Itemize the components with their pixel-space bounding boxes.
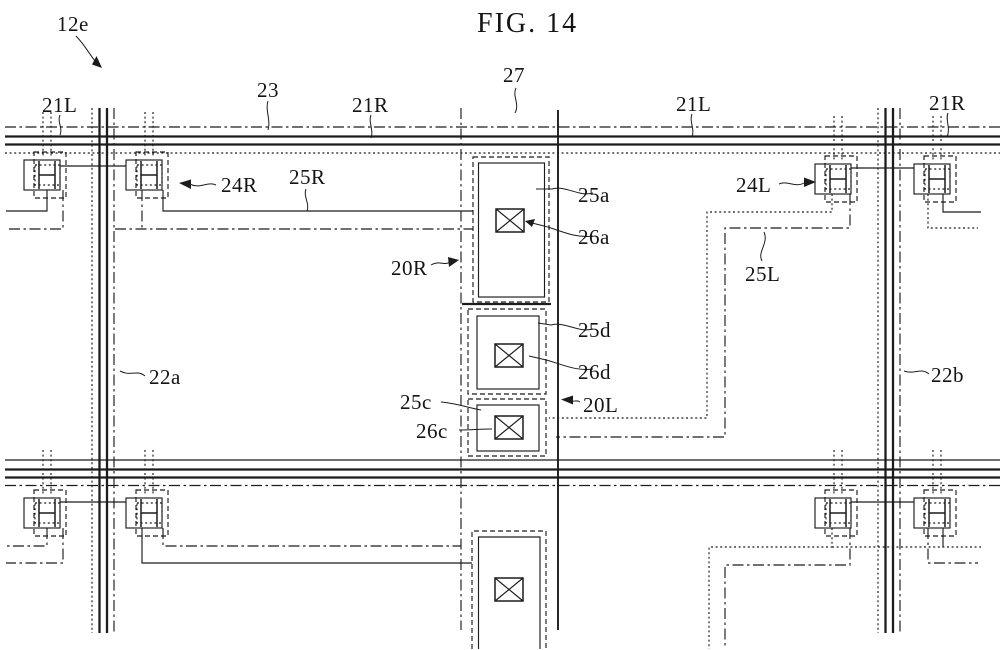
patent-figure-page: FIG. 14 12e 21L 23 21R 27 21L 21R 24R 25… [0, 0, 1004, 650]
arrow-24L [779, 178, 816, 188]
label-22b: 22b [931, 363, 964, 387]
figure-title: FIG. 14 [477, 8, 578, 39]
label-26c: 26c [416, 419, 448, 443]
label-25c: 25c [400, 390, 432, 414]
label-21L-left: 21L [42, 93, 77, 117]
arrow-12e [76, 36, 102, 68]
label-24R: 24R [221, 173, 258, 197]
leader-21L-left [59, 115, 61, 135]
arrow-20R [431, 257, 459, 267]
leader-21R-right [947, 113, 948, 137]
label-26d: 26d [578, 360, 611, 384]
label-24L: 24L [736, 173, 771, 197]
leader-21L-right [691, 114, 693, 137]
center-column-line-27 [461, 108, 558, 630]
label-25R: 25R [289, 165, 326, 189]
leader-27 [515, 88, 517, 113]
label-26a: 26a [578, 225, 610, 249]
electrode-box-25a [473, 157, 549, 302]
arrow-24R [179, 180, 216, 190]
label-25a: 25a [578, 183, 610, 207]
gate-bus-row-top [5, 127, 1000, 153]
leader-26c [459, 429, 492, 430]
tft-24R [126, 112, 168, 198]
label-21R-mid: 21R [352, 93, 389, 117]
label-20L: 20L [583, 393, 618, 417]
contact-26a-icon [496, 209, 524, 232]
trace-25R-lower [6, 528, 472, 563]
label-23: 23 [257, 78, 279, 102]
tft-bottom-left-inner [126, 450, 168, 536]
gate-bus-row-bottom [5, 460, 1000, 486]
arrow-26a-tip [525, 219, 535, 227]
contact-26c-icon [495, 416, 523, 439]
label-25d: 25d [578, 318, 611, 342]
leader-25L [761, 232, 765, 261]
label-21L-right: 21L [676, 92, 711, 116]
source-bus-left-22a [92, 108, 114, 633]
label-21R-right: 21R [929, 91, 966, 115]
source-bus-right-22b [878, 108, 900, 633]
label-25L: 25L [745, 262, 780, 286]
tft-pair-connectors [60, 166, 914, 502]
contact-26d-icon [495, 344, 523, 367]
leader-25R [305, 189, 308, 211]
label-20R: 20R [391, 256, 428, 280]
label-27: 27 [503, 63, 525, 87]
contact-bottom-icon [495, 578, 523, 601]
tft-bottom-right-inner [815, 450, 857, 536]
trace-25L-lower [709, 528, 981, 649]
tft-bottom-left-outer [24, 450, 66, 536]
leader-22a [120, 371, 145, 376]
leader-lines [59, 88, 948, 430]
leader-22b [904, 371, 929, 374]
tft-top-right-outer [914, 116, 956, 202]
electrode-box-25d [468, 309, 546, 394]
electrode-box-25c [468, 399, 546, 456]
tft-24L [815, 116, 857, 202]
arrow-20L [561, 396, 580, 405]
tft-bottom-right-outer [914, 450, 956, 536]
leader-23 [267, 101, 269, 130]
label-12e: 12e [57, 12, 89, 36]
label-22a: 22a [149, 365, 181, 389]
patent-figure-canvas: FIG. 14 12e 21L 23 21R 27 21L 21R 24R 25… [0, 0, 1004, 650]
